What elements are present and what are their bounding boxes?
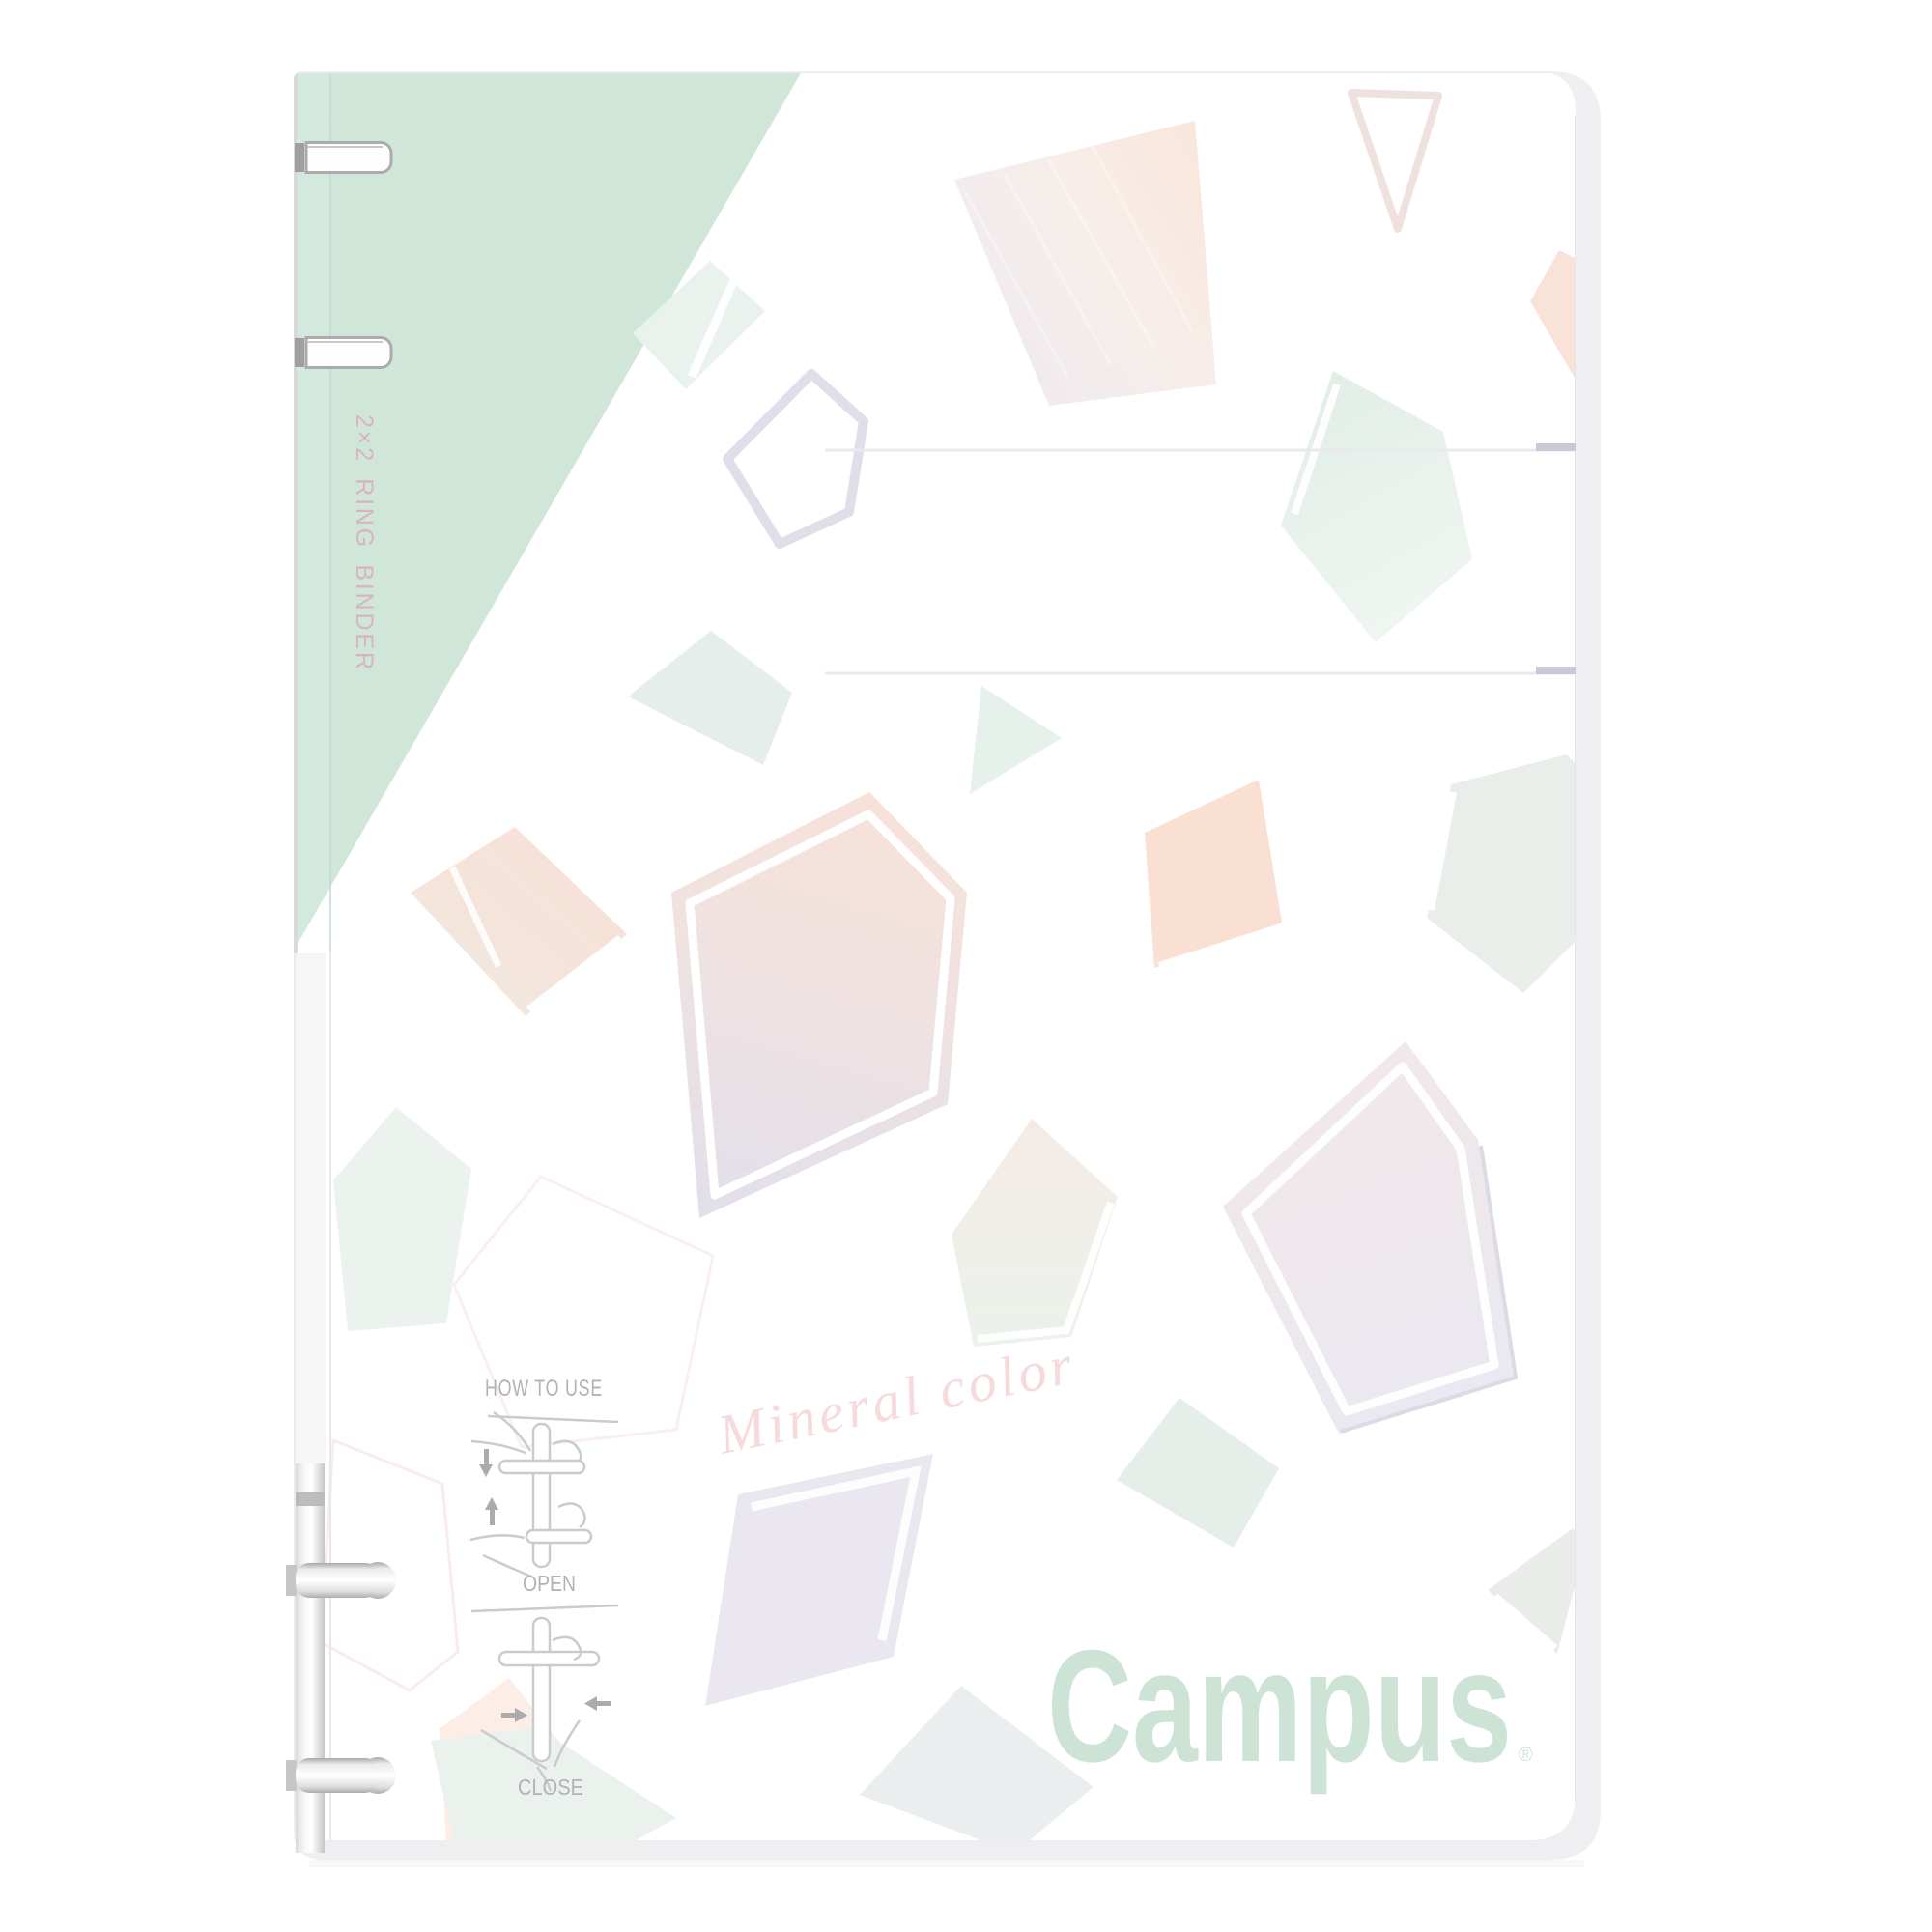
svg-text:Campus: Campus <box>1047 1617 1512 1795</box>
svg-text:OPEN: OPEN <box>523 1571 576 1596</box>
svg-text:®: ® <box>1519 1745 1533 1766</box>
svg-text:CLOSE: CLOSE <box>518 1775 583 1800</box>
svg-text:HOW TO USE: HOW TO USE <box>485 1376 603 1402</box>
svg-text:2×2 RING BINDER: 2×2 RING BINDER <box>351 414 378 671</box>
